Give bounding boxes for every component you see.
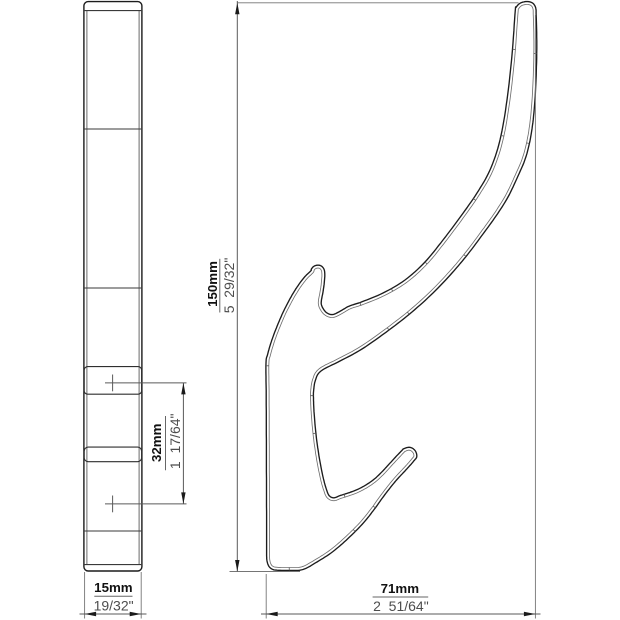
- svg-text:150mm: 150mm: [205, 261, 220, 307]
- svg-text:71mm: 71mm: [381, 581, 419, 596]
- svg-text:19/32": 19/32": [94, 598, 134, 614]
- svg-text:2 51/64": 2 51/64": [373, 598, 429, 614]
- svg-text:15mm: 15mm: [94, 580, 132, 595]
- svg-text:1 17/64": 1 17/64": [167, 413, 183, 469]
- svg-text:5 29/32": 5 29/32": [221, 258, 237, 314]
- svg-text:32mm: 32mm: [149, 424, 164, 462]
